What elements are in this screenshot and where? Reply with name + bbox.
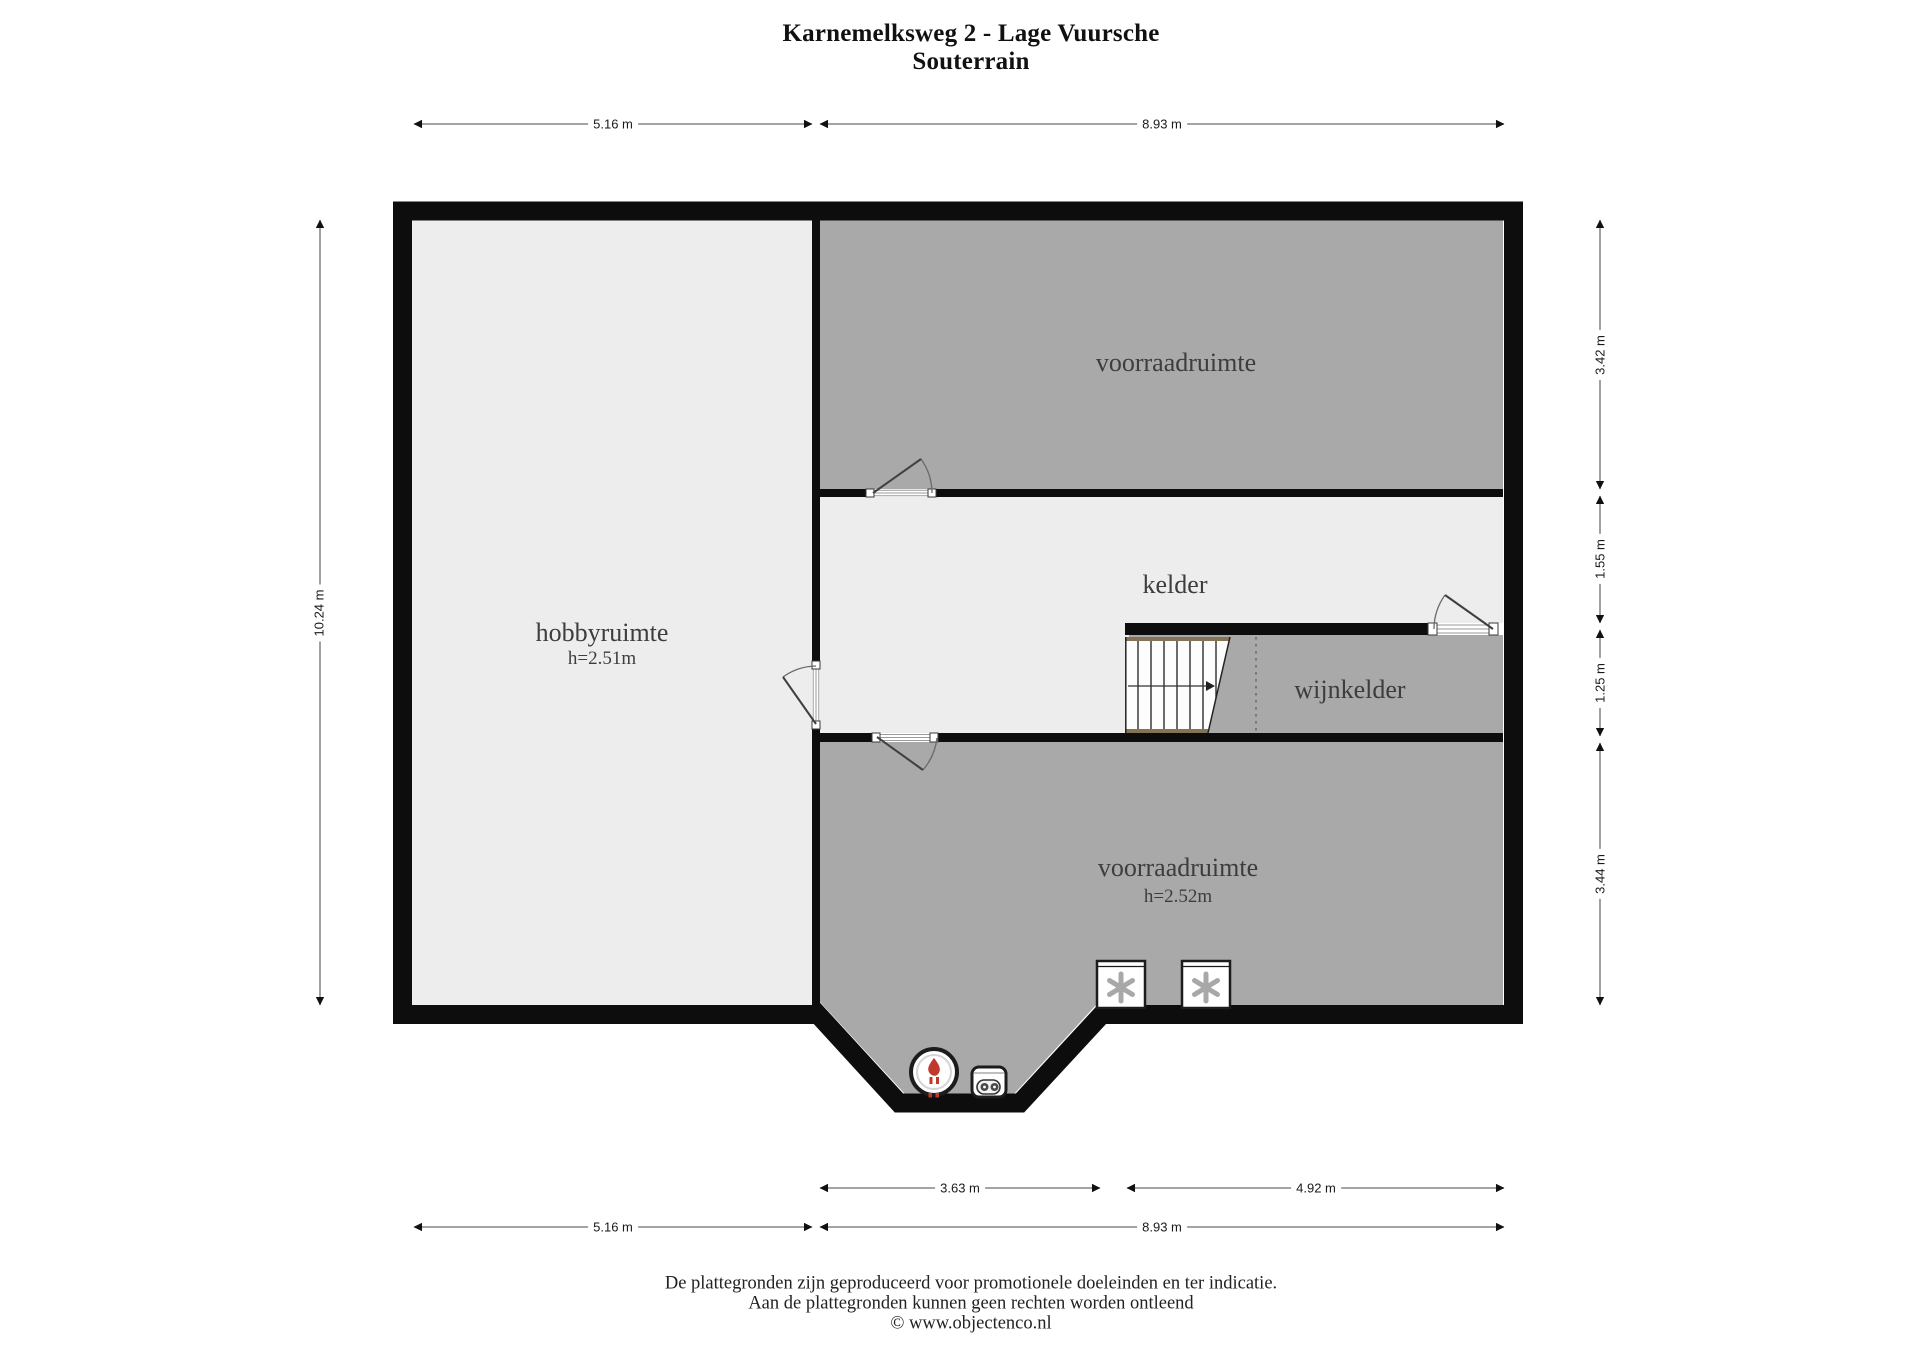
room-label-voorraadruimte-bottom: voorraadruimte	[1098, 853, 1258, 883]
room-label-wijnkelder: wijnkelder	[1294, 675, 1405, 705]
room-label-kelder: kelder	[1143, 570, 1208, 600]
voorraadruimte-bottom-floor	[820, 742, 1503, 1094]
floorplan-drawing	[0, 0, 1920, 1358]
footer-copyright: © www.objectenco.nl	[890, 1314, 1051, 1335]
floorplan-page: Karnemelksweg 2 - Lage Vuursche Souterra…	[0, 0, 1920, 1358]
dim-left: 10.24 m	[312, 585, 327, 642]
room-label-hobbyruimte: hobbyruimte	[536, 618, 669, 648]
footer-disclaimer-line2: Aan de plattegronden kunnen geen rechten…	[748, 1294, 1193, 1315]
boiler-flame-icon	[911, 1049, 957, 1098]
page-title: Karnemelksweg 2 - Lage Vuursche	[782, 20, 1159, 48]
dim-bottom-left: 5.16 m	[588, 1220, 638, 1235]
hobbyruimte-floor	[412, 220, 812, 1005]
dim-right-3: 1.25 m	[1593, 658, 1608, 708]
appliance-asterisk-icon	[1182, 961, 1230, 1008]
room-height-hobbyruimte: h=2.51m	[568, 648, 636, 670]
dim-top-right: 8.93 m	[1137, 117, 1187, 132]
dim-top-left: 5.16 m	[588, 117, 638, 132]
water-heater-icon	[972, 1067, 1006, 1097]
dim-bottom-bay: 3.63 m	[935, 1181, 985, 1196]
dim-right-2: 1.55 m	[1593, 534, 1608, 584]
dim-right-1: 3.42 m	[1593, 330, 1608, 380]
dim-bottom-right-inner: 4.92 m	[1291, 1181, 1341, 1196]
room-height-voorraadruimte-bottom: h=2.52m	[1144, 886, 1212, 908]
room-label-voorraadruimte-top: voorraadruimte	[1096, 348, 1256, 378]
dim-right-4: 3.44 m	[1593, 849, 1608, 899]
appliance-asterisk-icon	[1097, 961, 1145, 1008]
dim-bottom-right: 8.93 m	[1137, 1220, 1187, 1235]
footer-disclaimer-line1: De plattegronden zijn geproduceerd voor …	[665, 1274, 1277, 1295]
page-subtitle: Souterrain	[912, 48, 1029, 76]
